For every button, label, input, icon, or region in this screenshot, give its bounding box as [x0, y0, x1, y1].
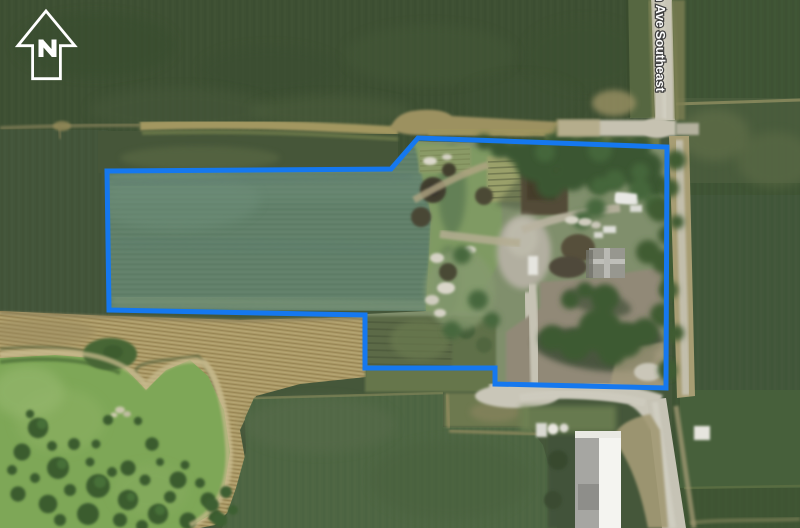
svg-text:h Ave Southeast: h Ave Southeast	[653, 0, 667, 93]
